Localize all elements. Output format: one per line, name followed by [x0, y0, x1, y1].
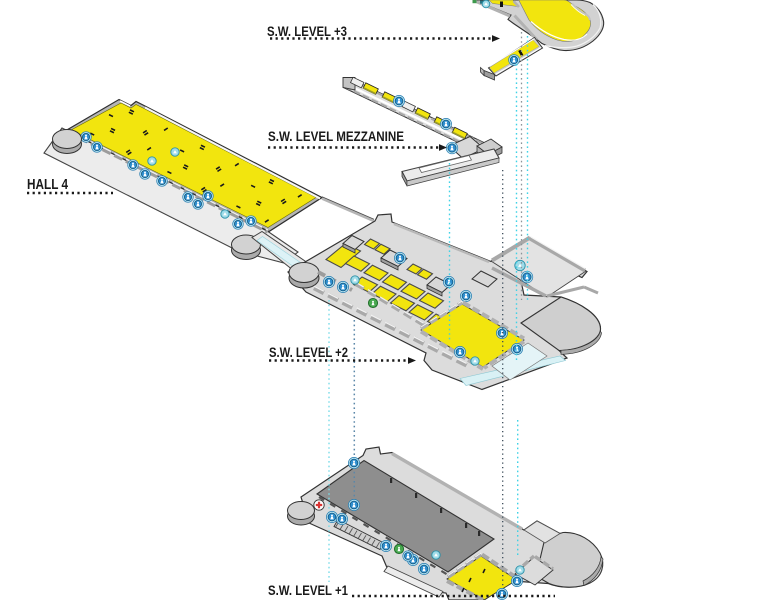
svg-text:S.W. LEVEL +2: S.W. LEVEL +2 — [269, 345, 348, 360]
svg-text:S.W. LEVEL +1: S.W. LEVEL +1 — [268, 583, 348, 598]
svg-text:HALL 4: HALL 4 — [27, 177, 68, 193]
svg-text:S.W. LEVEL +3: S.W. LEVEL +3 — [267, 24, 347, 39]
svg-text:S.W. LEVEL MEZZANINE: S.W. LEVEL MEZZANINE — [268, 129, 404, 144]
